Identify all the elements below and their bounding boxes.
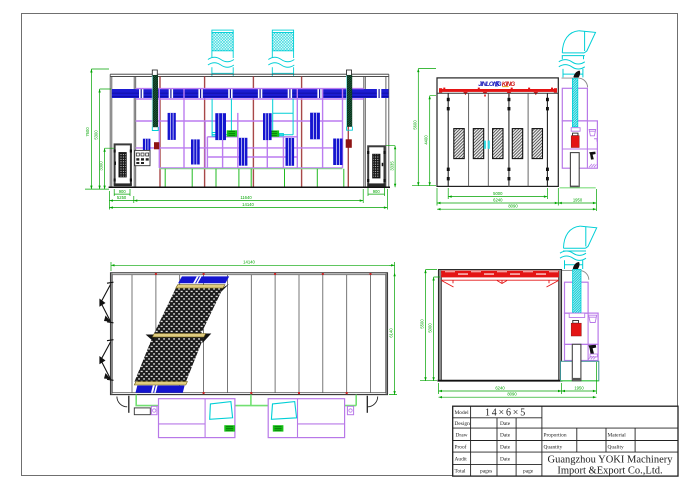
svg-text:7600: 7600 xyxy=(85,127,90,137)
svg-text:page: page xyxy=(523,469,534,475)
svg-text:14140: 14140 xyxy=(242,202,254,207)
svg-text:Proportion: Proportion xyxy=(544,433,567,439)
svg-text:Model: Model xyxy=(455,410,470,416)
svg-text:Material: Material xyxy=(608,433,627,439)
svg-text:3335: 3335 xyxy=(389,161,394,171)
svg-text:Audit: Audit xyxy=(455,457,468,463)
svg-text:Date: Date xyxy=(500,445,511,451)
svg-text:8090: 8090 xyxy=(507,392,517,397)
svg-text:Quantity: Quantity xyxy=(544,445,563,451)
svg-text:6240: 6240 xyxy=(493,198,503,203)
svg-text:5500: 5500 xyxy=(420,319,425,329)
svg-text:4400: 4400 xyxy=(424,135,429,145)
svg-text:Date: Date xyxy=(500,457,511,463)
svg-text:6240: 6240 xyxy=(495,386,505,391)
svg-text:5000: 5000 xyxy=(493,191,503,196)
svg-text:11640: 11640 xyxy=(240,195,252,200)
svg-text:900: 900 xyxy=(373,189,381,194)
svg-text:3300: 3300 xyxy=(99,161,104,171)
svg-text:Total: Total xyxy=(455,469,467,475)
svg-text:pages: pages xyxy=(480,469,492,475)
svg-text:Guangzhou YOKI Machinery: Guangzhou YOKI Machinery xyxy=(548,454,674,465)
svg-text:Import &Export Co.,Ltd.: Import &Export Co.,Ltd. xyxy=(557,465,662,476)
svg-text:5250: 5250 xyxy=(117,195,127,200)
svg-text:Quality: Quality xyxy=(608,445,624,451)
svg-text:Date: Date xyxy=(500,421,511,427)
svg-text:900: 900 xyxy=(119,189,127,194)
svg-text:5600: 5600 xyxy=(412,120,417,130)
svg-text:5000: 5000 xyxy=(428,323,433,333)
svg-text:14140: 14140 xyxy=(243,260,255,265)
svg-text:Proof: Proof xyxy=(455,444,467,451)
svg-text:Date: Date xyxy=(500,433,511,439)
svg-text:8090: 8090 xyxy=(508,204,518,209)
svg-text:S: S xyxy=(495,79,500,89)
svg-text:6140: 6140 xyxy=(389,328,394,338)
svg-text:1950: 1950 xyxy=(574,386,584,391)
svg-text:5300: 5300 xyxy=(93,130,98,140)
svg-text:14×6×5: 14×6×5 xyxy=(485,408,527,419)
svg-text:Draw: Draw xyxy=(456,433,468,439)
svg-text:Design: Design xyxy=(455,421,471,427)
svg-text:1950: 1950 xyxy=(573,198,583,203)
